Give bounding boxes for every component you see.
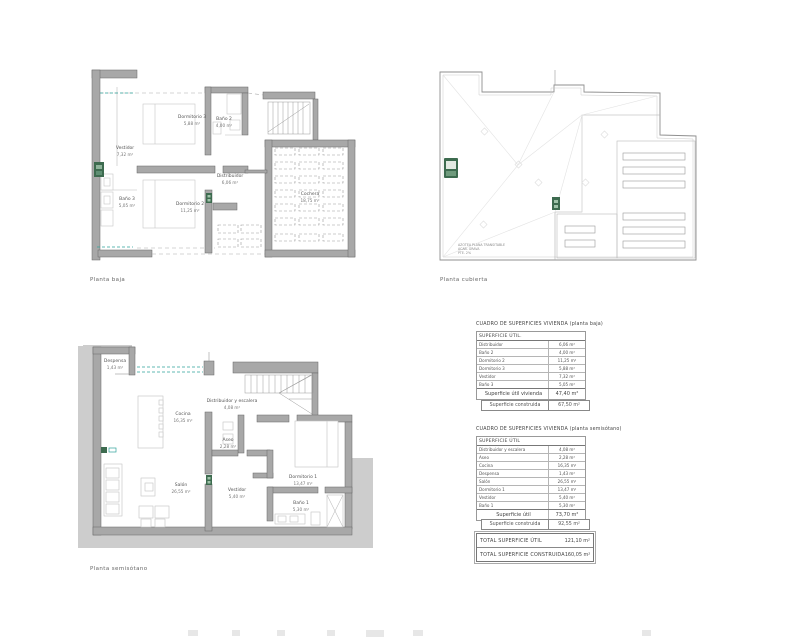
table-row: Vestidor7,32 m²: [477, 372, 585, 380]
plan-planta-baja: Dormitorio 35,88 m² Baño 24,00 m² Vestid…: [85, 62, 363, 280]
services-dashed-lines: [137, 367, 203, 372]
totals-box: TOTAL SUPERFICIE ÚTIL 121,10 m² TOTAL SU…: [476, 533, 594, 562]
table-header: SUPERFICIE ÚTIL.: [477, 332, 585, 341]
room-label-aseo: Aseo2,28 m²: [220, 438, 236, 449]
table-row: Distribuidor y escalera4,08 m²: [477, 446, 585, 453]
table-row: Baño 24,00 m²: [477, 348, 585, 356]
boiler-unit-icon: [94, 162, 104, 177]
pergola-slats: [565, 153, 685, 248]
table-title-planta-baja: CUADRO DE SUPERFICIES VIVIENDA (planta b…: [476, 322, 603, 327]
caption-planta-cubierta: Planta cubierta: [440, 277, 488, 283]
table-row: Vestidor5,40 m²: [477, 493, 585, 501]
room-label-dormitorio-2: Dormitorio 211,25 m²: [176, 202, 204, 213]
built-area-box-planta-semisotano: Superficie construida 92,55 m²: [481, 519, 590, 530]
table-row: Salón26,55 m²: [477, 477, 585, 485]
room-label-distribuidor: Distribuidor6,06 m²: [217, 174, 243, 185]
chimney-unit-icon: [444, 158, 458, 178]
table-row: Baño 15,30 m²: [477, 501, 585, 509]
plan-planta-cubierta: AZOTEA PLANA TRANSITABLE ACAB. GRAVA PTE…: [438, 70, 718, 272]
area-table-planta-semisotano: SUPERFICIE ÚTIL Distribuidor y escalera4…: [476, 436, 586, 521]
appliance-icon: [101, 447, 116, 453]
drain-symbols: [480, 128, 608, 228]
area-table-planta-baja: SUPERFICIE ÚTIL. Distribuidor6,06 m² Bañ…: [476, 331, 586, 400]
room-label-dormitorio-1: Dormitorio 113,47 m²: [289, 475, 317, 486]
planta-cubierta-drawing: [438, 70, 718, 272]
table-row: Dormitorio 35,88 m²: [477, 364, 585, 372]
total-row: TOTAL SUPERFICIE ÚTIL 121,10 m²: [477, 534, 593, 547]
table-row: Aseo2,28 m²: [477, 453, 585, 461]
planta-baja-drawing: [85, 62, 363, 280]
pergola-frame: [557, 141, 695, 258]
door-unit-icon: [206, 193, 212, 203]
planta-semisotano-drawing: [75, 338, 375, 588]
roof-vent-icon: [552, 197, 560, 210]
total-row: TOTAL SUPERFICIE CONSTRUIDA 160,05 m²: [477, 547, 593, 561]
room-label-dormitorio-3: Dormitorio 35,88 m²: [178, 115, 206, 126]
table-row: Distribuidor6,06 m²: [477, 341, 585, 348]
room-label-cochera: Cochera18,75 m²: [300, 192, 319, 203]
room-label-despensa: Despensa1,43 m²: [104, 359, 126, 370]
stairs: [268, 102, 310, 134]
table-title-planta-semisotano: CUADRO DE SUPERFICIES VIVIENDA (planta s…: [476, 427, 622, 432]
roof-annotation: AZOTEA PLANA TRANSITABLE ACAB. GRAVA PTE…: [458, 243, 505, 255]
plan-planta-semisotano: Despensa1,43 m² Cocina16,35 m² Distribui…: [75, 338, 375, 588]
roof-fall-lines: [443, 75, 657, 257]
room-label-salon: Salón26,55 m²: [171, 483, 190, 494]
carport-slats: [218, 148, 343, 247]
built-area-box-planta-baja: Superficie construida 67,50 m²: [481, 400, 590, 411]
table-total-row: Superficie útil vivienda47,40 m²: [477, 388, 585, 399]
walls: [92, 70, 355, 260]
table-header: SUPERFICIE ÚTIL: [477, 437, 585, 446]
table-row: Dormitorio 113,47 m²: [477, 485, 585, 493]
table-row: Baño 35,05 m²: [477, 380, 585, 388]
caption-planta-baja: Planta baja: [90, 277, 125, 283]
room-label-bano-2: Baño 24,00 m²: [216, 117, 232, 128]
room-label-distribuidor-escalera: Distribuidor y escalera4,08 m²: [207, 399, 258, 410]
room-label-vestidor: Vestidor7,32 m²: [116, 146, 134, 157]
caption-planta-semisotano: Planta semisótano: [90, 566, 148, 572]
room-label-cocina: Cocina16,35 m²: [173, 412, 192, 423]
table-row: Cocina16,35 m²: [477, 461, 585, 469]
room-label-bano-3: Baño 35,05 m²: [119, 197, 135, 208]
room-label-vestidor: Vestidor5,40 m²: [228, 488, 246, 499]
door-unit-icon: [206, 475, 212, 485]
table-row: Dormitorio 211,25 m²: [477, 356, 585, 364]
table-row: Despensa1,43 m²: [477, 469, 585, 477]
floor-plan-sheet: { "captions": { "baja": "Planta baja", "…: [0, 0, 800, 640]
room-label-bano-1: Baño 15,30 m²: [293, 501, 309, 512]
